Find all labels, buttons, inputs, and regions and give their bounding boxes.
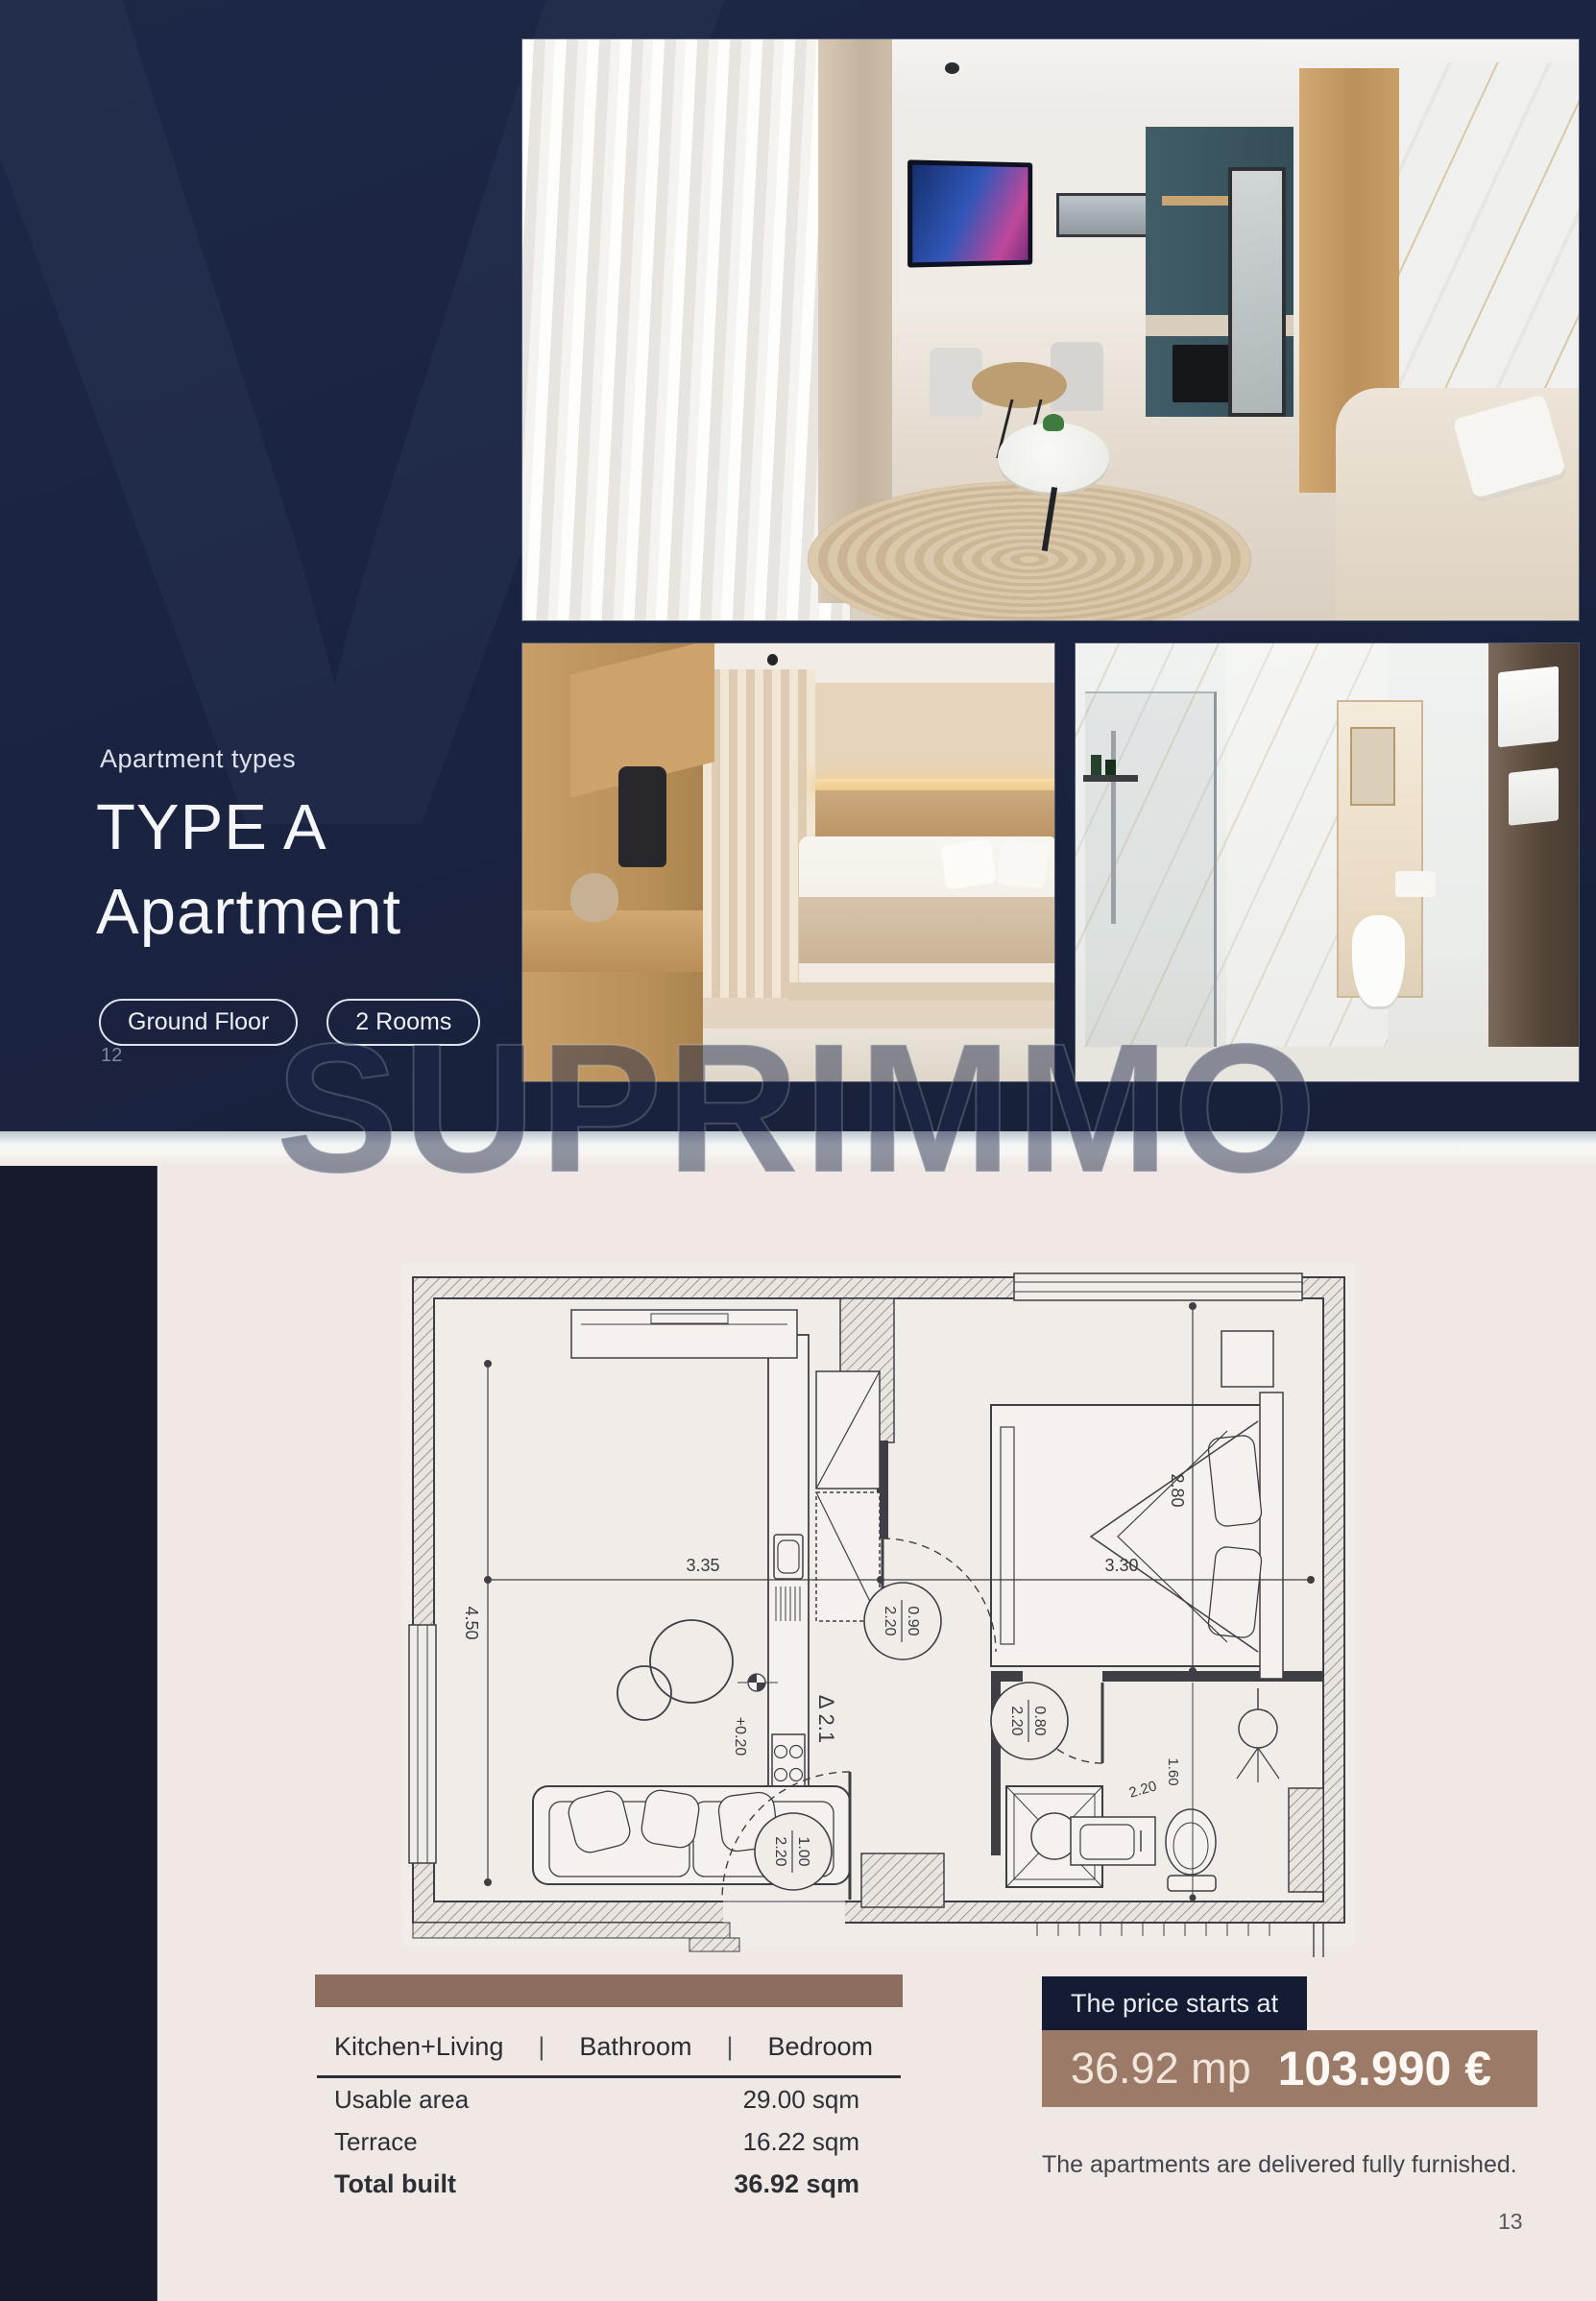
door-width: 1.00 [795,1836,811,1866]
page-number-13: 13 [1498,2209,1523,2235]
bedroom-photo [522,643,1054,1081]
bathroom-floor [1076,1047,1579,1081]
badge-group: Ground Floor 2 Rooms [99,999,480,1046]
led-cove-light [815,779,1054,789]
price-amount: 103.990 € [1278,2041,1491,2096]
door-width: 0.90 [905,1606,921,1635]
hanging-jacket [618,766,666,867]
living-curtains [522,39,850,620]
bag-on-counter [570,873,618,921]
towel [1509,767,1559,825]
tall-cabinets-plan [816,1371,880,1621]
dim-living-width: 3.35 [686,1556,719,1575]
row-value: 29.00 sqm [743,2085,859,2115]
dim-bedroom-width: 3.30 [1104,1556,1138,1575]
dim-bedroom-height: 2.80 [1168,1473,1187,1507]
header-separator: | [726,2032,733,2062]
dim-living-height: 4.50 [462,1606,481,1639]
price-tag: The price starts at [1042,1976,1307,2030]
table-accent-bar [315,1974,903,2007]
bedroom-window [1014,1273,1302,1300]
table-row-total-built: Total built 36.92 sqm [315,2163,903,2205]
nightstand-plan [1221,1331,1273,1387]
page-number-12: 12 [101,1045,122,1067]
header-separator: | [538,2032,544,2062]
row-label: Total built [334,2169,734,2199]
door-height: 2.20 [882,1606,898,1635]
floorplan-section: 3.35 3.30 4.50 2.80 1.60 2.20 0.90 2.20 … [0,1166,1596,2301]
title-line-1: TYPE A [96,786,401,870]
left-navy-sidebar [0,1166,157,2301]
shampoo-bottle [1091,755,1102,775]
shower-glass-panel [1085,691,1216,1068]
bed-pillow [940,839,996,889]
row-value: 16.22 sqm [743,2127,859,2157]
tv-cabinet-plan [571,1310,797,1358]
row-label: Terrace [334,2127,743,2157]
door-label-bathroom: 0.80 2.20 [991,1683,1068,1759]
door-height: 2.20 [1008,1706,1025,1735]
hero-section: V Apartment types TYPE A Apartment Groun… [0,0,1596,1131]
bed-pillow [997,840,1049,889]
bed-plan [991,1393,1283,1679]
row-value: 36.92 sqm [734,2169,859,2199]
standing-mirror [1228,167,1287,417]
bedroom-back-wall [815,683,1054,787]
area-details-table: Kitchen+Living | Bathroom | Bedroom Usab… [315,1974,903,2205]
price-area-value: 36.92 mp [1071,2044,1251,2094]
furnished-note: The apartments are delivered fully furni… [1042,2151,1517,2179]
bed-blanket [799,897,1054,962]
bathroom-sink [1395,871,1436,897]
table-header: Kitchen+Living | Bathroom | Bedroom [334,2032,903,2062]
room-kitchen-living: Kitchen+Living [334,2032,503,2062]
bed-frame [788,982,1054,1000]
table-row-terrace: Terrace 16.22 sqm [315,2120,903,2163]
living-room-photo [522,39,1579,620]
vanity-plan [1071,1817,1155,1865]
bed-headboard-wall [815,790,1054,838]
level-label: +0.20 [732,1717,748,1756]
floor-plan: 3.35 3.30 4.50 2.80 1.60 2.20 0.90 2.20 … [403,1248,1354,1959]
hero-eyebrow: Apartment types [100,744,296,774]
room-bedroom: Bedroom [767,2032,873,2062]
wood-vanity-counter [522,910,703,972]
badge-ground-floor[interactable]: Ground Floor [99,999,298,1046]
coffee-table [998,423,1109,493]
title-line-2: Apartment [96,870,401,955]
page-title: TYPE A Apartment [96,786,401,956]
left-window [409,1625,436,1863]
door-label-living-bedroom: 0.90 2.20 [864,1583,941,1659]
wall-tv [907,159,1032,267]
hall-wall-block [861,1853,944,1907]
bathroom-photo [1076,643,1579,1081]
shower-shelf [1083,775,1139,782]
bathroom-mirror [1350,727,1395,806]
section-divider [0,1131,1596,1166]
door-width: 0.80 [1031,1706,1048,1735]
door-label-entrance: 1.00 2.20 [755,1813,832,1890]
bath-corner-block [1289,1788,1323,1892]
towel [1498,666,1559,747]
shampoo-bottle [1105,760,1115,775]
brochure-page: V Apartment types TYPE A Apartment Groun… [0,0,1596,2301]
table-plant [1043,414,1064,431]
kitchen-oven [1173,345,1236,403]
room-bathroom: Bathroom [579,2032,691,2062]
toilet-plan [1166,1809,1216,1891]
row-label: Usable area [334,2085,743,2115]
table-row-usable-area: Usable area 29.00 sqm [315,2078,903,2120]
toilet [1352,915,1405,1007]
badge-rooms[interactable]: 2 Rooms [326,999,480,1046]
price-bar: 36.92 mp 103.990 € [1042,2030,1537,2107]
door-height: 2.20 [772,1836,788,1866]
dim-bath-width: 1.60 [1165,1757,1181,1785]
unit-label: Δ 2.1 [814,1695,838,1743]
